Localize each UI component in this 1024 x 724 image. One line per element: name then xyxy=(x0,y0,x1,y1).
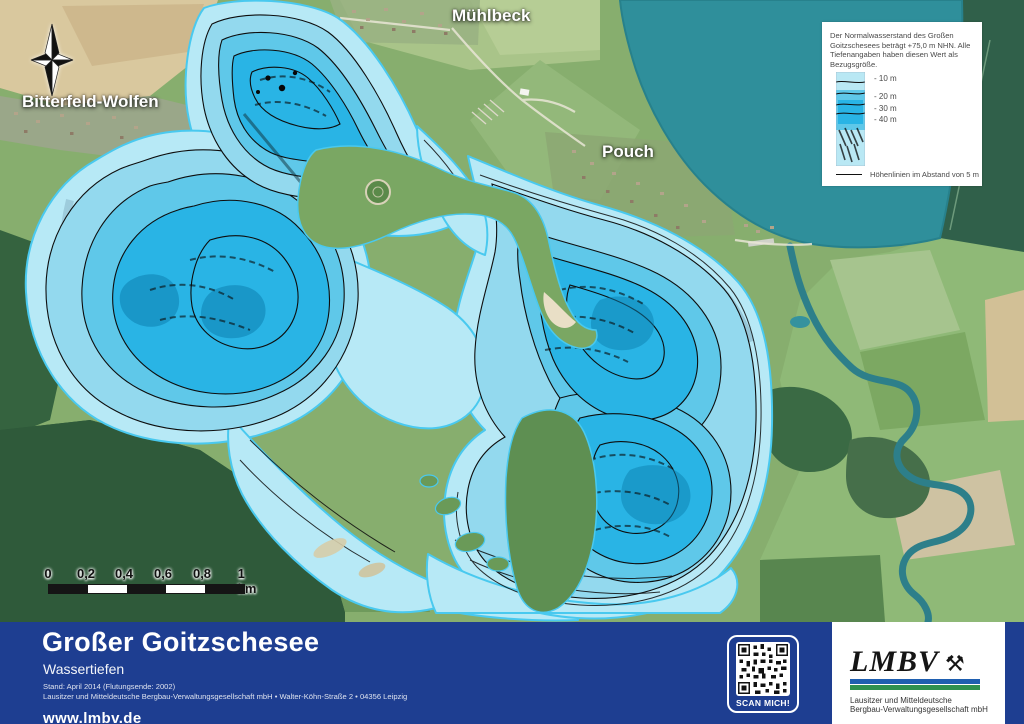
legend-depth-sample-image xyxy=(836,72,865,166)
hammer-pick-icon: ⚒ xyxy=(945,652,965,676)
scale-bar-segments xyxy=(48,584,245,594)
legend-contour-note: Höhenlinien im Abstand von 5 m xyxy=(870,170,979,179)
place-label-muehlbeck: Mühlbeck xyxy=(452,6,530,26)
logo-green-bar xyxy=(850,685,980,690)
logo-subline-2: Bergbau-Verwaltungsgesellschaft mbH xyxy=(850,705,1005,715)
lmbv-logo-panel: LMBV ⚒ Lausitzer und Mitteldeutsche Berg… xyxy=(832,622,1005,724)
scale-tick-04: 0,4 xyxy=(115,566,133,581)
meta-date: Stand: April 2014 (Flutungsende: 2002) xyxy=(43,682,407,692)
scale-tick-06: 0,6 xyxy=(154,566,172,581)
page-subtitle: Wassertiefen xyxy=(43,661,407,677)
legend-depth-30m: - 30 m xyxy=(874,104,897,113)
scale-tick-02: 0,2 xyxy=(77,566,95,581)
logo-subline-1: Lausitzer und Mitteldeutsche xyxy=(850,696,1005,706)
north-compass-icon xyxy=(28,22,76,98)
legend-depth-10m: - 10 m xyxy=(874,74,897,83)
footer-banner: Großer Goitzschesee Wassertiefen Stand: … xyxy=(0,622,1024,724)
legend-box: Der Normalwasserstand des Großen Goitzsc… xyxy=(822,22,982,186)
scale-tick-0: 0 xyxy=(44,566,51,581)
page-title: Großer Goitzschesee xyxy=(42,626,407,658)
map-canvas: Mühlbeck Bitterfeld-Wolfen Pouch Der Nor… xyxy=(0,0,1024,622)
logo-blue-bar xyxy=(850,679,980,684)
qr-code-icon xyxy=(738,644,788,694)
legend-depth-40m: - 40 m xyxy=(874,115,897,124)
scale-tick-08: 0,8 xyxy=(193,566,211,581)
legend-note: Der Normalwasserstand des Großen Goitzsc… xyxy=(830,31,974,69)
meta-publisher: Lausitzer und Mitteldeutsche Bergbau-Ver… xyxy=(43,692,407,702)
qr-label: SCAN MICH! xyxy=(729,698,797,708)
scale-bar: 0 0,2 0,4 0,6 0,8 1 km xyxy=(42,566,262,598)
website-link[interactable]: www.lmbv.de xyxy=(43,710,407,724)
place-label-pouch: Pouch xyxy=(602,142,654,162)
contour-line-sample xyxy=(836,174,862,175)
map-poster: Mühlbeck Bitterfeld-Wolfen Pouch Der Nor… xyxy=(0,0,1024,724)
place-label-bitterfeld-wolfen: Bitterfeld-Wolfen xyxy=(22,92,159,112)
qr-code-block[interactable]: SCAN MICH! xyxy=(727,635,799,713)
lmbv-wordmark: LMBV xyxy=(850,648,939,676)
legend-depth-20m: - 20 m xyxy=(874,92,897,101)
